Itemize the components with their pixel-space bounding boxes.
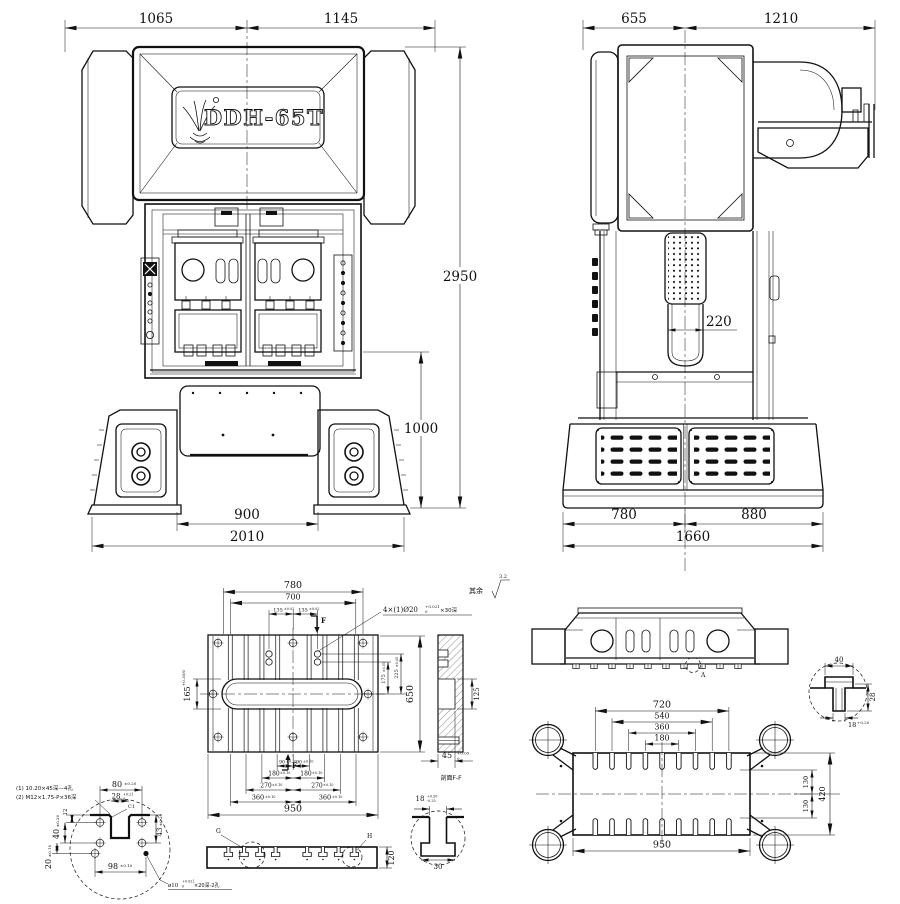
louver-panel-left <box>601 432 677 480</box>
dim-180-left: 180 <box>268 771 280 778</box>
dim-135-left: 135 <box>273 608 283 614</box>
dim-20: 20 <box>44 859 53 869</box>
slide-tslot-detail: 40 28 18 +0.20 <box>809 656 877 729</box>
dim-18-slot-tol-dn: -0.25 <box>427 799 436 803</box>
dim-45-tol-up: +0.05 <box>457 751 470 756</box>
corner-tslot-detail: (1) 10.20×45深—4孔 (2) M12×1.75-P×36深 80 ±… <box>16 780 232 899</box>
dim-40: 40 <box>52 829 61 839</box>
front-body <box>141 204 361 378</box>
hole-note-suffix: ×30深 <box>440 606 458 614</box>
dim-130-b: 130 <box>802 800 810 812</box>
dim-40-detail: 40 <box>835 656 844 664</box>
dim-270-right: 270 <box>311 783 323 790</box>
dim-90-left: 90 <box>279 760 285 766</box>
hole-note-10-tol-up: +0.021 <box>182 880 195 884</box>
dim-18-slot: 18 <box>416 795 425 803</box>
dim-28-tol-up: +0.21 <box>123 793 133 797</box>
drawing-canvas: DDH-65T <box>0 0 900 904</box>
front-base <box>88 386 410 514</box>
dim-28: 28 <box>112 793 121 801</box>
detail-note-2: (2) M12×1.75-P×36深 <box>16 793 77 801</box>
tslot-g-detail: 18 +0.50 -0.25 30 <box>411 795 465 872</box>
dim-780-plan: 780 <box>284 580 302 591</box>
dim-165: 165 <box>183 686 192 701</box>
dim-700-plan: 700 <box>285 593 300 602</box>
dim-360-right-tol: ±0.10 <box>332 795 342 799</box>
dim-135-left-tol: ±0.02 <box>284 607 294 611</box>
hole-note-10-prefix: ø10 <box>168 883 179 889</box>
surface-roughness-value: 3.2 <box>499 574 507 580</box>
dim-45-tol-dn: 0 <box>457 756 460 761</box>
dim-175-tol: ±0.05 <box>382 662 386 672</box>
dim-180-right-tol: ±0.10 <box>312 771 322 775</box>
dim-18-slot-tol-up: +0.50 <box>427 795 437 799</box>
detail-g-label: G <box>216 828 221 835</box>
dim-360-right: 360 <box>319 794 331 802</box>
dim-45: 45 <box>442 751 452 760</box>
dim-40-tol: ±0.20 <box>55 814 60 827</box>
dim-28-detail: 28 <box>869 693 877 702</box>
left-control-panel <box>141 258 159 344</box>
dim-20-tol: ±0.10 <box>47 844 52 857</box>
dim-130-a: 130 <box>802 776 810 788</box>
hole-note-10-tol-dn: 0 <box>182 885 184 889</box>
dim-225-tol: ±0.05 <box>395 657 399 667</box>
dim-1210: 1210 <box>764 11 798 27</box>
front-leg-right <box>314 410 410 514</box>
dim-18-detail: 18 <box>848 721 856 729</box>
dim-880: 880 <box>741 507 767 523</box>
dim-655: 655 <box>621 11 647 27</box>
bolster-elevation-view: A <box>532 608 788 679</box>
dim-720: 720 <box>653 700 671 711</box>
surface-finish-note: 其余 3.2 <box>469 574 510 598</box>
front-view: DDH-65T <box>65 11 479 552</box>
dim-90-right: 90 <box>296 760 302 766</box>
dim-80: 80 <box>112 780 122 789</box>
dim-165-tol: +0.30/0 <box>181 669 186 686</box>
dim-30: 30 <box>434 863 443 871</box>
dim-220: 220 <box>706 314 732 330</box>
side-view: 220 655 1210 780 880 1660 <box>563 11 875 572</box>
dim-43-tol: ±0.20 <box>158 813 163 826</box>
hole-note-10-suffix: ×20深-2孔 <box>194 882 220 889</box>
side-column: 220 <box>592 231 779 420</box>
perforated-strip <box>668 236 703 301</box>
dim-120: 120 <box>387 850 396 865</box>
slide-bottom-view: 720 540 360 180 950 130 130 420 40 <box>529 656 877 864</box>
dim-950-plan: 950 <box>284 804 302 815</box>
side-pedestal <box>563 418 823 508</box>
dim-180-left-tol: ±0.10 <box>280 771 290 775</box>
dim-270-right-tol: ±0.10 <box>323 783 333 787</box>
dim-1000: 1000 <box>404 421 438 437</box>
dim-950-slide: 950 <box>653 840 671 851</box>
dim-1065: 1065 <box>139 11 173 27</box>
dim-270-left: 270 <box>260 783 272 790</box>
section-ff-caption: 剖面F-F <box>440 774 462 782</box>
dim-175: 175 <box>381 674 387 684</box>
detail-a-label: A <box>700 672 706 679</box>
drawing-page: DDH-65T <box>0 0 900 904</box>
dim-98: 98 <box>108 862 118 871</box>
dim-1145: 1145 <box>324 11 358 27</box>
dim-270-left-tol: ±0.10 <box>272 783 282 787</box>
dim-28-tol-dn: 0 <box>123 797 125 801</box>
dim-650: 650 <box>405 685 416 703</box>
dim-360-left: 360 <box>252 794 264 802</box>
section-mark-top: F <box>321 616 326 625</box>
front-leg-left <box>88 410 181 514</box>
dim-360-left-tol: ±0.10 <box>265 795 275 799</box>
hole-note-tol-dn: 0 <box>425 609 428 614</box>
dim-2950: 2950 <box>443 269 477 285</box>
surface-note-label: 其余 <box>469 586 483 595</box>
dim-180: 180 <box>654 734 669 743</box>
side-crown <box>591 30 874 572</box>
dim-900: 900 <box>234 507 260 523</box>
dim-125: 125 <box>473 687 481 700</box>
dim-780: 780 <box>611 507 637 523</box>
dim-98-tol: ±0.10 <box>120 863 133 868</box>
detail-note-1: (1) 10.20×45深—4孔 <box>16 784 73 792</box>
dim-420: 420 <box>818 786 827 801</box>
dim-135-right: 135 <box>298 608 308 614</box>
dim-135-right-tol: ±0.02 <box>309 607 319 611</box>
dim-43: 43 <box>156 828 164 837</box>
louver-panel-right <box>694 432 770 480</box>
dim-1660: 1660 <box>676 529 710 545</box>
dim-90-left-tol: ±0.10 <box>286 760 296 764</box>
dim-360: 360 <box>654 723 669 732</box>
chamfer-label: C1 <box>128 804 135 810</box>
dim-2010: 2010 <box>230 529 264 545</box>
front-crown: DDH-65T <box>82 20 415 224</box>
dim-540: 540 <box>654 712 669 721</box>
bolster-plan-dimensions: 780 700 135 ±0.02 135 ±0.02 4×(1)Ø20 +0.… <box>181 580 472 819</box>
dim-225: 225 <box>394 669 400 679</box>
hole-note-prefix: 4×(1)Ø20 <box>383 606 418 614</box>
dim-180-right: 180 <box>300 771 312 778</box>
section-ff-view: 125 45 +0.05 0 剖面F-F <box>421 635 481 782</box>
dim-80-tol: ±0.20 <box>124 781 137 786</box>
dim-18-detail-tol: +0.20 <box>857 720 870 725</box>
dim-12: 12 <box>63 809 69 816</box>
detail-h-label: H <box>367 833 372 840</box>
dim-90-right-tol: ±0.10 <box>303 760 313 764</box>
logo-text: DDH-65T <box>204 105 324 130</box>
bolster-profile-view: G H 120 18 +0.50 -0.25 30 <box>207 795 465 872</box>
